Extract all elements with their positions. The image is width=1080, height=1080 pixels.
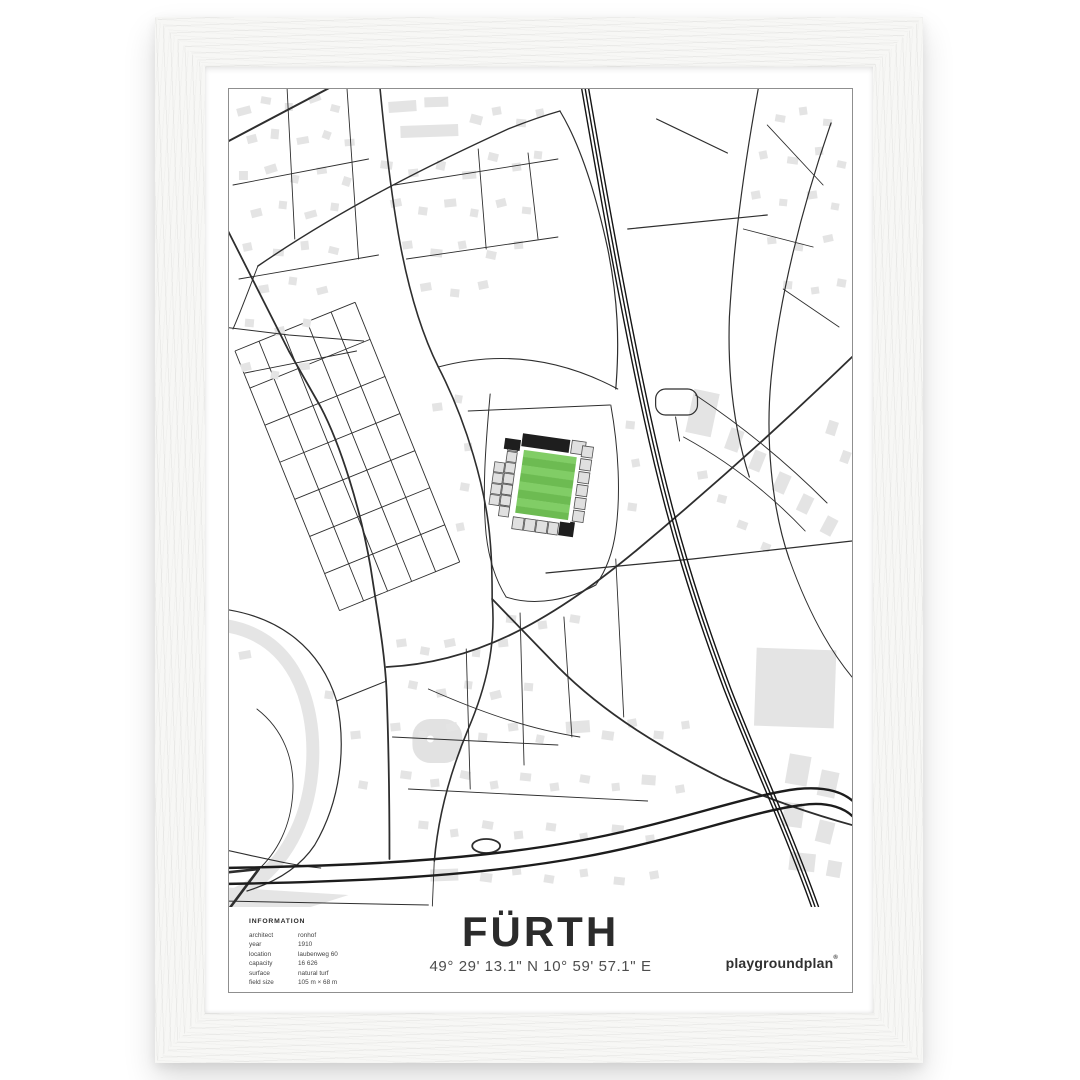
frame-mat: INFORMATION architectronhofyear1910locat…	[205, 67, 873, 1013]
brand-logo: playgroundplan®	[726, 955, 838, 971]
stadium-map	[229, 89, 852, 907]
info-label: field size	[249, 978, 298, 987]
map-area	[229, 89, 852, 907]
stadium-pitch	[514, 448, 578, 521]
brand-name: playgroundplan	[726, 955, 834, 971]
poster-footer: INFORMATION architectronhofyear1910locat…	[229, 907, 852, 992]
registered-mark: ®	[833, 955, 838, 961]
page-background: INFORMATION architectronhofyear1910locat…	[0, 0, 1080, 1080]
frame-bar-right	[873, 17, 923, 1063]
frame-bar-top	[155, 17, 923, 67]
poster-title: FÜRTH	[229, 909, 852, 955]
frame-bar-left	[155, 17, 205, 1063]
picture-frame: INFORMATION architectronhofyear1910locat…	[155, 17, 923, 1063]
frame-bar-bottom	[155, 1013, 923, 1063]
stadium-poster: INFORMATION architectronhofyear1910locat…	[228, 88, 853, 993]
info-row: field size105 m × 68 m	[249, 978, 419, 987]
info-value: 105 m × 68 m	[298, 978, 337, 987]
